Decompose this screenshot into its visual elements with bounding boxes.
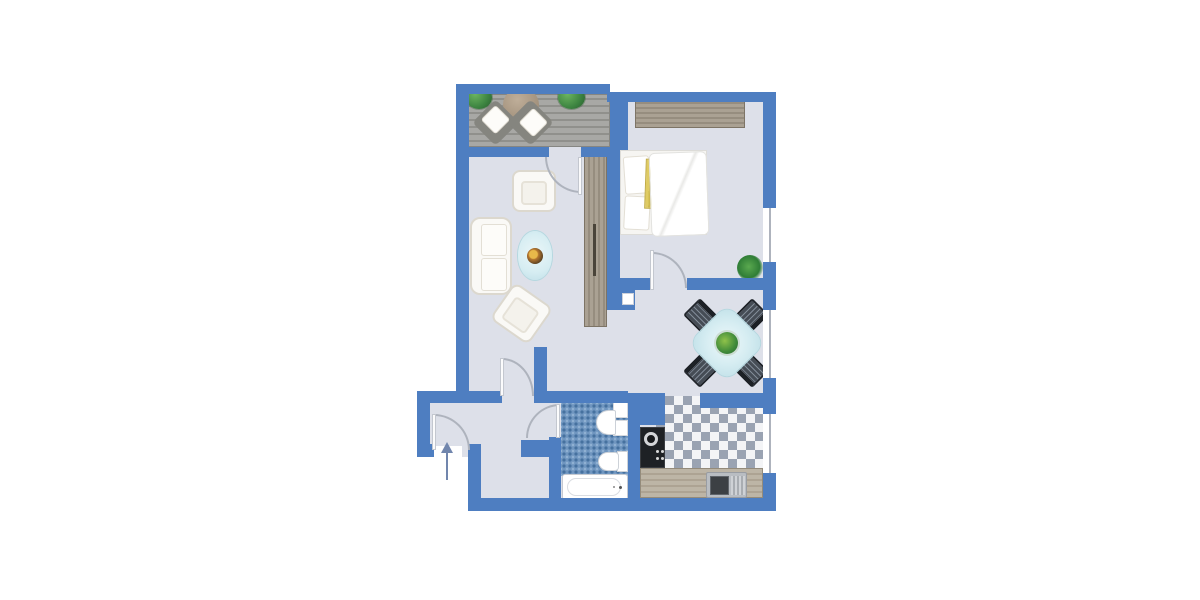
cooktop	[640, 427, 665, 468]
balcony-door-leaf	[578, 157, 582, 195]
chair-cushion	[481, 105, 511, 135]
wall-storage-top	[521, 440, 549, 457]
dining-window	[763, 310, 776, 378]
sofa-cushion	[481, 258, 507, 291]
sofa	[470, 217, 512, 295]
wall-bottom	[468, 498, 776, 511]
outside-patch	[455, 457, 468, 511]
sink-drainer	[731, 476, 745, 495]
entrance-arrow-icon	[440, 442, 454, 480]
sink-basin	[710, 476, 729, 495]
wall-bedroom-bottom-left	[620, 278, 652, 290]
tub-faucet-icon	[619, 486, 622, 489]
double-bed	[620, 150, 707, 235]
wardrobe-handle	[593, 224, 596, 276]
toilet-bowl	[598, 452, 619, 471]
wall-divider	[607, 147, 620, 310]
arrow-shaft	[446, 452, 448, 480]
entry-door-leaf	[432, 414, 436, 450]
knob-icon	[656, 457, 659, 460]
washbasin	[596, 410, 616, 435]
duvet	[649, 151, 710, 237]
bedroom-window	[763, 208, 776, 262]
bedroom-wardrobe	[635, 98, 745, 128]
wall-hall-stub	[534, 347, 547, 403]
sofa-cushion	[481, 224, 507, 256]
wall-bedroom-bottom-right	[687, 278, 776, 290]
wall-balcony-bottom-left	[456, 147, 549, 157]
armchair-top	[512, 170, 556, 212]
shaft-box	[622, 293, 634, 305]
knob-icon	[661, 457, 664, 460]
wall-balcony-top	[456, 84, 610, 94]
bathroom-door-leaf	[556, 404, 560, 438]
wall-left	[456, 84, 469, 395]
wall-bathroom-top	[547, 391, 628, 403]
armchair-seat	[521, 181, 547, 205]
floor-plan-canvas	[0, 0, 1200, 600]
armchair-seat	[501, 296, 540, 335]
tub-drain-icon	[613, 486, 615, 488]
knob-icon	[656, 450, 659, 453]
living-hall-door-leaf	[500, 358, 504, 396]
kitchen-sink	[706, 472, 747, 498]
wall-kitchen-top	[700, 393, 763, 408]
wall-divider-upper	[610, 92, 628, 150]
dining-centerpiece-plant-icon	[716, 332, 738, 354]
burner-icon	[644, 432, 658, 446]
fruit-bowl-icon	[527, 248, 543, 264]
knob-icon	[661, 450, 664, 453]
bathtub	[562, 474, 628, 500]
wall-kitchen-chunk	[628, 393, 665, 425]
kitchen-window	[763, 414, 776, 473]
wall-bedroom-top	[607, 92, 776, 102]
bedroom-door-leaf	[650, 250, 654, 290]
